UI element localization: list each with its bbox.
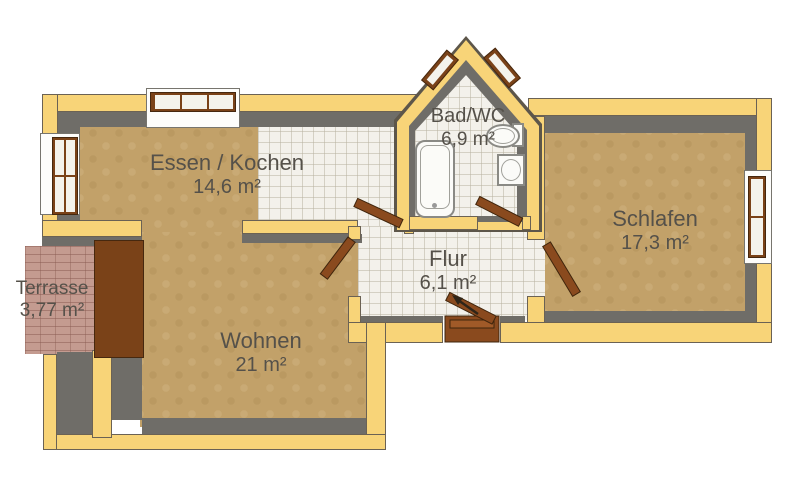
floor-plan: Essen / Kochen 14,6 m² Bad/WC 6,9 m² Sch…: [0, 0, 789, 500]
door-leaf-living-hall: [320, 237, 355, 279]
door-overlay: [0, 0, 789, 500]
door-leaf-kitchen-hall: [354, 198, 403, 227]
door-leaf-bath-hall: [476, 196, 523, 226]
door-leaf-bedroom-hall: [543, 242, 581, 296]
